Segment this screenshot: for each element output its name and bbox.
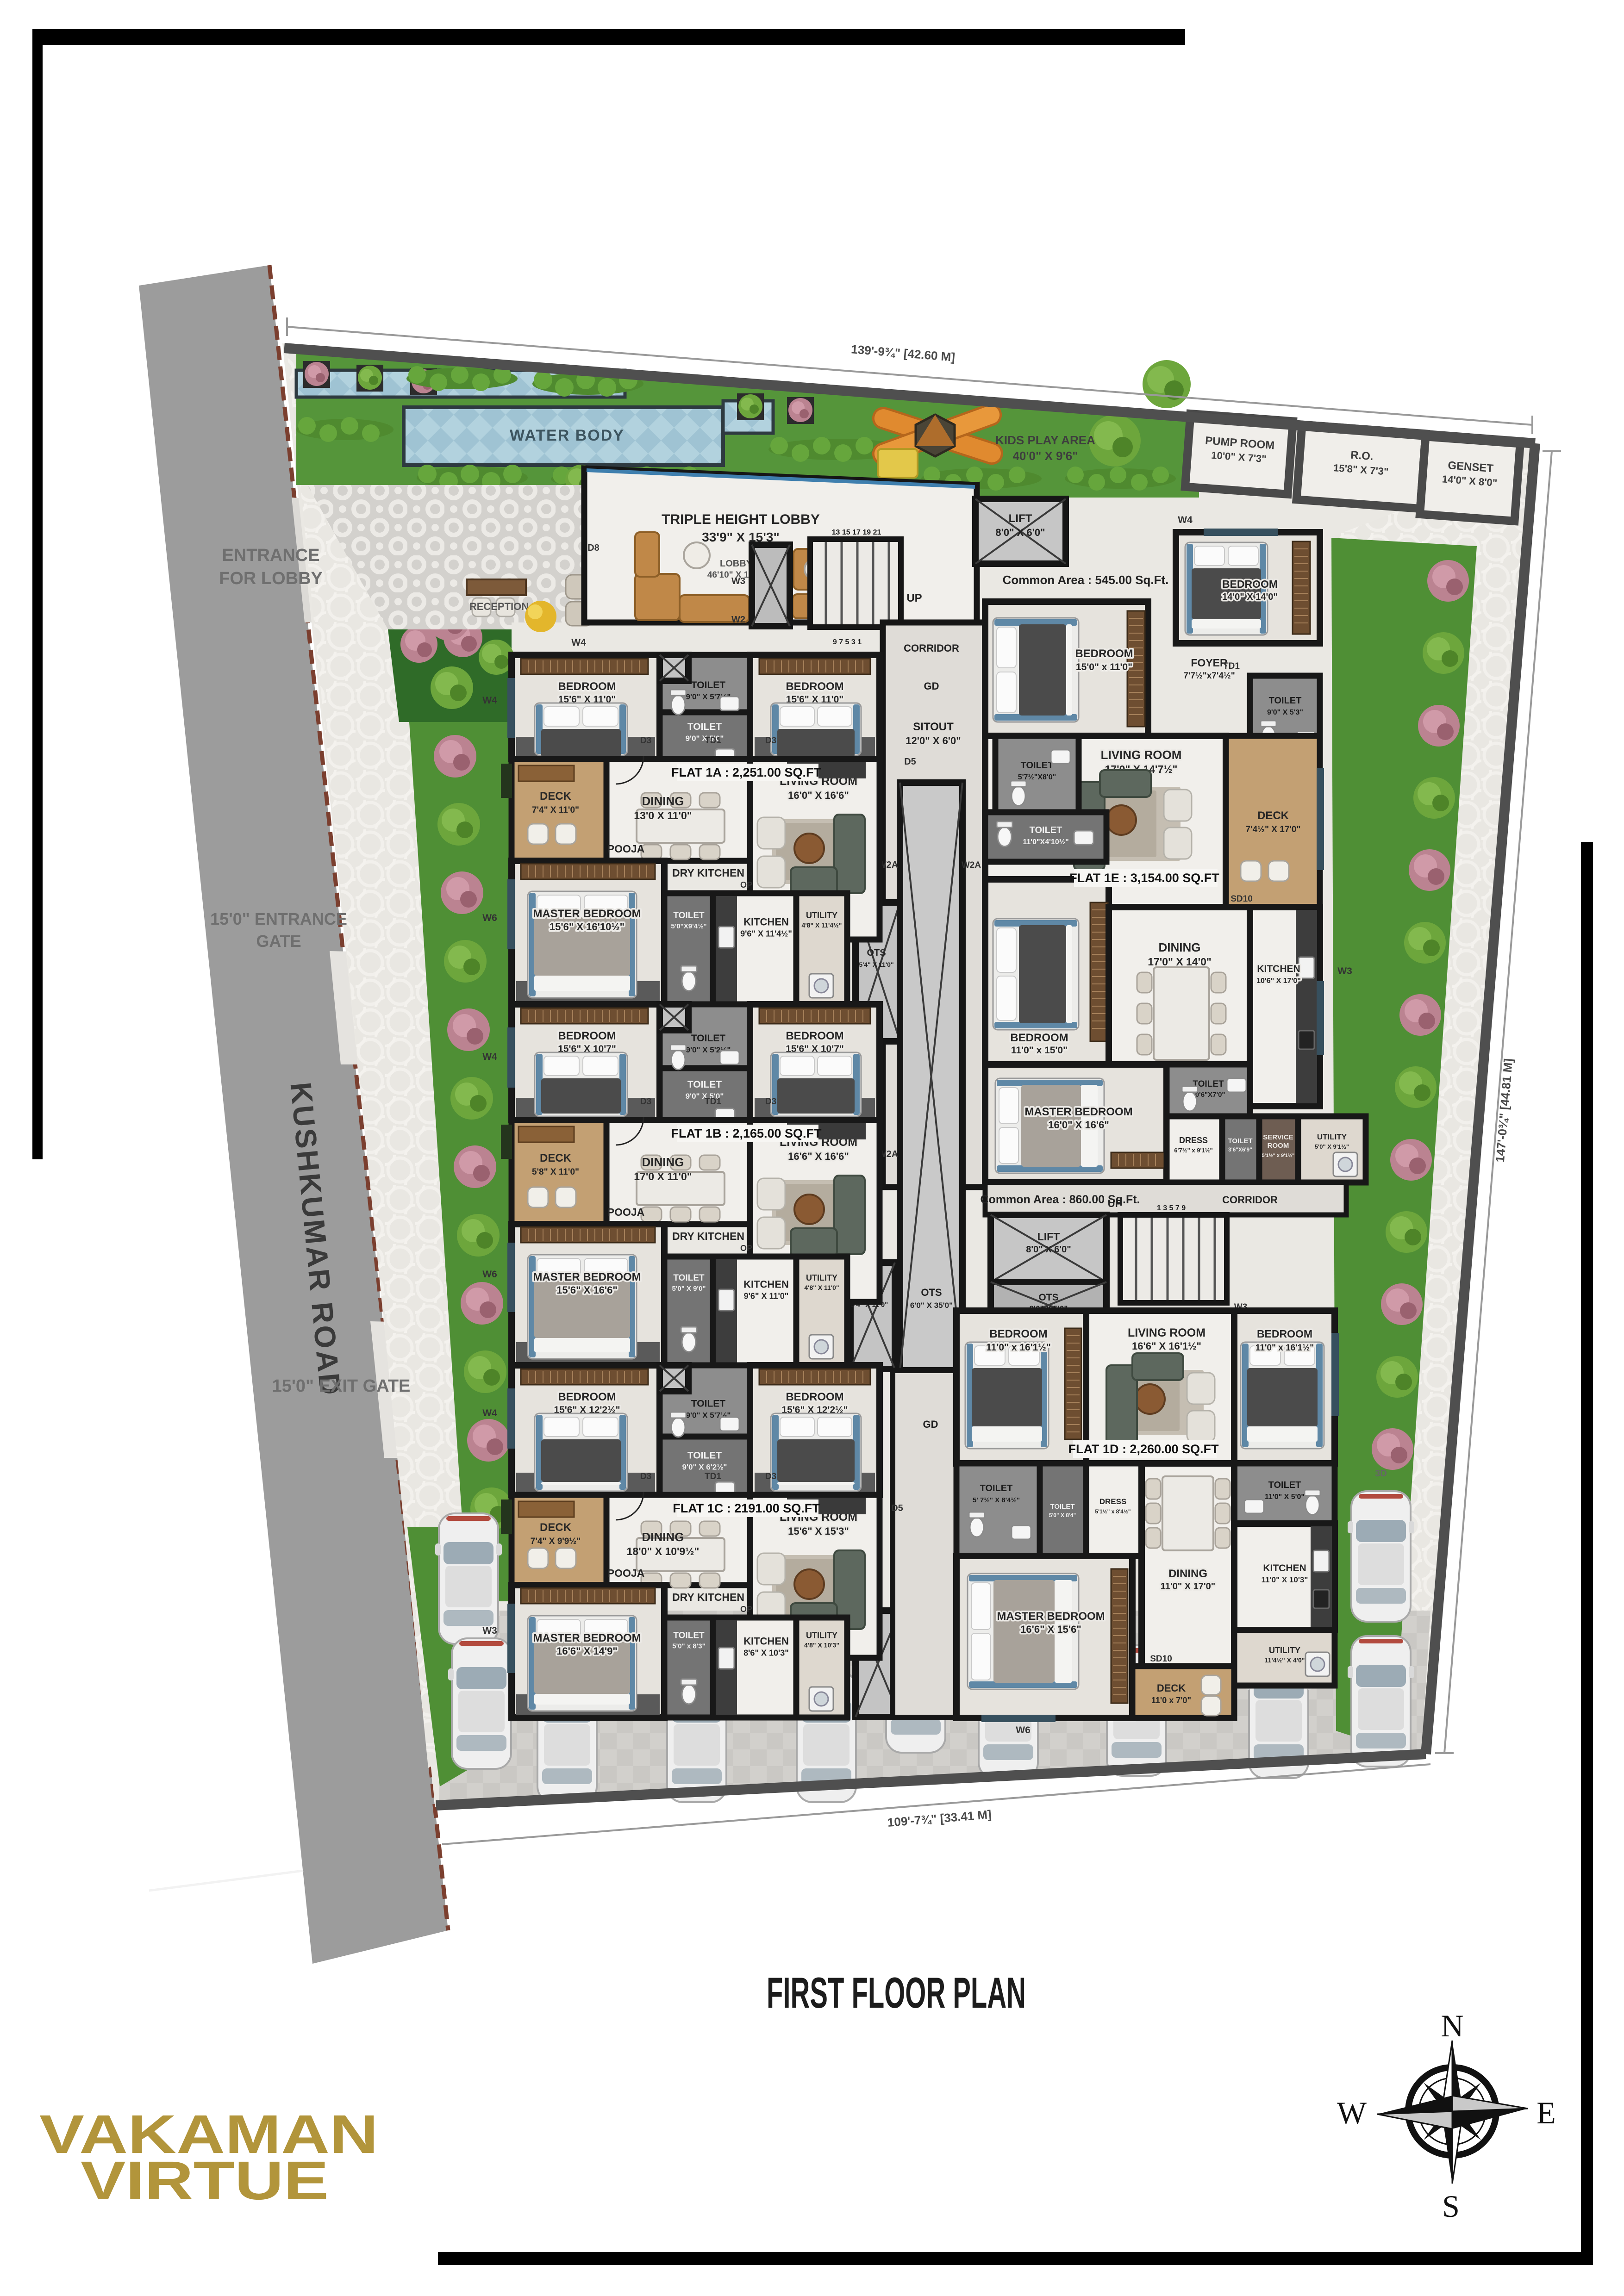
svg-text:DINING: DINING	[1168, 1568, 1207, 1580]
svg-text:5'4" X 11'0": 5'4" X 11'0"	[859, 961, 893, 968]
svg-text:18'0" X 10'9½": 18'0" X 10'9½"	[627, 1545, 700, 1557]
svg-text:16'0" X 16'6": 16'0" X 16'6"	[788, 790, 849, 801]
svg-text:KITCHEN: KITCHEN	[743, 916, 789, 928]
svg-text:15'6" X 16'10½": 15'6" X 16'10½"	[550, 921, 625, 933]
svg-text:7'7½"x7'4½": 7'7½"x7'4½"	[1183, 671, 1235, 681]
svg-text:LIFT: LIFT	[1037, 1231, 1060, 1243]
svg-text:15'0" ENTRANCE: 15'0" ENTRANCE	[210, 909, 347, 928]
svg-text:UP: UP	[1108, 1198, 1122, 1209]
svg-text:16'0" X 16'6": 16'0" X 16'6"	[1048, 1119, 1109, 1131]
svg-text:GD: GD	[923, 1419, 938, 1430]
svg-text:N: N	[1441, 2008, 1463, 2043]
svg-text:KITCHEN: KITCHEN	[743, 1278, 789, 1290]
svg-text:BEDROOM: BEDROOM	[1075, 647, 1133, 660]
svg-text:TOILET: TOILET	[1021, 760, 1054, 771]
svg-text:BEDROOM: BEDROOM	[989, 1328, 1047, 1340]
svg-text:9'6" X 11'4½": 9'6" X 11'4½"	[740, 929, 792, 939]
svg-text:BEDROOM: BEDROOM	[786, 1030, 843, 1042]
svg-text:OP: OP	[740, 1605, 752, 1614]
svg-text:DECK: DECK	[540, 1152, 572, 1164]
svg-text:W4: W4	[482, 1052, 497, 1062]
svg-text:SD10: SD10	[1230, 894, 1253, 904]
svg-text:TOILET: TOILET	[687, 1450, 722, 1461]
svg-text:TOILET: TOILET	[687, 1079, 722, 1090]
svg-text:TOILET: TOILET	[980, 1483, 1013, 1493]
svg-text:FLAT 1C : 2191.00 SQ.FT: FLAT 1C : 2191.00 SQ.FT	[673, 1501, 820, 1515]
svg-text:GATE: GATE	[256, 932, 301, 951]
svg-text:RECEPTION: RECEPTION	[469, 601, 529, 612]
svg-text:14'0" X 14'0": 14'0" X 14'0"	[1222, 592, 1278, 602]
svg-text:5' 7½" X 8'4½": 5' 7½" X 8'4½"	[973, 1496, 1020, 1504]
svg-text:ENTRANCE: ENTRANCE	[222, 546, 319, 565]
svg-text:MASTER BEDROOM: MASTER BEDROOM	[997, 1610, 1105, 1623]
svg-text:11'0" X 17'0": 11'0" X 17'0"	[1161, 1581, 1216, 1592]
svg-text:FLAT 1E : 3,154.00 SQ.FT: FLAT 1E : 3,154.00 SQ.FT	[1069, 871, 1219, 885]
svg-text:UTILITY: UTILITY	[806, 911, 837, 920]
svg-text:S: S	[1442, 2189, 1460, 2224]
svg-text:W6: W6	[482, 913, 497, 923]
svg-text:POOJA: POOJA	[607, 1567, 645, 1579]
svg-text:9'0" X 5'3": 9'0" X 5'3"	[1267, 709, 1303, 716]
svg-text:D5: D5	[904, 757, 916, 767]
svg-text:12'0" X 6'0": 12'0" X 6'0"	[906, 735, 961, 747]
svg-text:W4: W4	[482, 695, 497, 706]
svg-text:BEDROOM: BEDROOM	[786, 1391, 843, 1403]
svg-text:TOILET: TOILET	[1030, 825, 1062, 835]
svg-text:UP: UP	[906, 592, 922, 604]
svg-text:TD1: TD1	[1223, 661, 1240, 671]
svg-text:17'0" X 14'0": 17'0" X 14'0"	[1148, 956, 1212, 968]
svg-text:FIRST FLOOR PLAN: FIRST FLOOR PLAN	[767, 1968, 1026, 2017]
svg-text:DECK: DECK	[1257, 809, 1289, 822]
svg-text:15'6" X 15'3": 15'6" X 15'3"	[788, 1525, 849, 1537]
svg-text:BEDROOM: BEDROOM	[786, 680, 843, 693]
svg-text:CORRIDOR: CORRIDOR	[904, 642, 959, 654]
svg-text:5'8" X 11'0": 5'8" X 11'0"	[532, 1167, 579, 1177]
svg-text:5'0" X 9'1½": 5'0" X 9'1½"	[1315, 1143, 1349, 1150]
svg-text:5'0" X 8'4": 5'0" X 8'4"	[1049, 1512, 1076, 1518]
svg-text:4'8" X 11'4½": 4'8" X 11'4½"	[802, 921, 842, 929]
svg-text:BEDROOM: BEDROOM	[558, 680, 616, 693]
svg-text:5'1½" x 9'1½": 5'1½" x 9'1½"	[1262, 1153, 1295, 1158]
svg-text:11'4½" X 4'0": 11'4½" X 4'0"	[1265, 1656, 1305, 1664]
svg-text:6'7½" x 9'1½": 6'7½" x 9'1½"	[1174, 1147, 1213, 1154]
svg-text:OP: OP	[740, 1244, 752, 1253]
svg-text:3D: 3D	[1375, 1468, 1387, 1479]
svg-text:13 15 17 19 21: 13 15 17 19 21	[832, 529, 881, 536]
svg-text:MASTER BEDROOM: MASTER BEDROOM	[1024, 1106, 1132, 1118]
svg-text:DINING: DINING	[642, 1155, 684, 1169]
svg-text:LIFT: LIFT	[1009, 512, 1032, 525]
svg-text:TOILET: TOILET	[1269, 696, 1302, 706]
svg-text:D3: D3	[765, 1097, 776, 1107]
svg-text:15'6" X 16'6": 15'6" X 16'6"	[556, 1284, 618, 1296]
svg-text:TOILET: TOILET	[1228, 1137, 1252, 1145]
svg-text:FLAT 1A : 2,251.00 SQ.FT: FLAT 1A : 2,251.00 SQ.FT	[671, 765, 822, 779]
svg-text:KITCHEN: KITCHEN	[743, 1636, 789, 1647]
svg-text:D5: D5	[891, 1503, 903, 1513]
svg-text:LOBBY: LOBBY	[720, 559, 753, 569]
svg-text:TOILET: TOILET	[673, 911, 705, 921]
svg-text:16'6" X 14'9": 16'6" X 14'9"	[556, 1645, 618, 1657]
svg-text:TOILET: TOILET	[1050, 1503, 1074, 1511]
svg-text:TOILET: TOILET	[691, 680, 725, 691]
svg-text:DRY KITCHEN: DRY KITCHEN	[672, 1591, 744, 1603]
svg-text:TD1: TD1	[705, 1472, 721, 1481]
svg-text:8'6" X 10'3": 8'6" X 10'3"	[743, 1649, 789, 1658]
svg-text:KIDS PLAY AREA: KIDS PLAY AREA	[995, 433, 1095, 447]
svg-text:Common Area : 545.00 Sq.Ft.: Common Area : 545.00 Sq.Ft.	[1003, 573, 1169, 587]
svg-text:TRIPLE HEIGHT LOBBY: TRIPLE HEIGHT LOBBY	[662, 512, 820, 527]
svg-text:11'0" x 15'0": 11'0" x 15'0"	[1011, 1045, 1068, 1056]
svg-text:TOILET: TOILET	[673, 1630, 705, 1640]
svg-text:W: W	[1337, 2095, 1367, 2130]
svg-text:DECK: DECK	[540, 1521, 572, 1534]
svg-text:UTILITY: UTILITY	[1269, 1646, 1300, 1655]
svg-text:SD10: SD10	[1150, 1654, 1172, 1664]
svg-text:VIRTUE: VIRTUE	[81, 2150, 329, 2211]
svg-text:D8: D8	[587, 543, 600, 553]
svg-text:10'6" X 17'0": 10'6" X 17'0"	[1256, 977, 1301, 985]
svg-text:OTS: OTS	[921, 1287, 942, 1298]
svg-text:ROOM: ROOM	[1268, 1142, 1289, 1150]
svg-text:BEDROOM: BEDROOM	[1010, 1032, 1068, 1044]
svg-text:POOJA: POOJA	[607, 1206, 645, 1218]
svg-text:BEDROOM: BEDROOM	[558, 1030, 616, 1042]
svg-text:SERVICE: SERVICE	[1263, 1133, 1293, 1141]
svg-text:DINING: DINING	[642, 794, 684, 808]
svg-text:13'0 X 11'0": 13'0 X 11'0"	[634, 809, 692, 821]
svg-text:UTILITY: UTILITY	[806, 1273, 837, 1282]
svg-text:7'4" X 9'9½": 7'4" X 9'9½"	[531, 1537, 581, 1546]
svg-text:MASTER BEDROOM: MASTER BEDROOM	[533, 908, 641, 920]
svg-text:W2: W2	[731, 615, 745, 625]
svg-text:SITOUT: SITOUT	[913, 721, 954, 733]
svg-text:DINING: DINING	[642, 1530, 684, 1544]
svg-text:MASTER BEDROOM: MASTER BEDROOM	[533, 1271, 641, 1283]
svg-text:GD: GD	[924, 680, 939, 692]
svg-text:3'6"X6'9": 3'6"X6'9"	[1228, 1146, 1252, 1153]
svg-text:15'0" x 11'0": 15'0" x 11'0"	[1076, 662, 1132, 672]
svg-text:11'0" X 10'3": 11'0" X 10'3"	[1262, 1575, 1308, 1584]
svg-text:E: E	[1537, 2095, 1556, 2130]
svg-text:BEDROOM: BEDROOM	[1222, 578, 1278, 590]
svg-text:OTS: OTS	[1038, 1292, 1058, 1303]
svg-text:TD1: TD1	[705, 736, 721, 746]
svg-text:16'6" X 15'6": 16'6" X 15'6"	[1020, 1624, 1081, 1635]
svg-text:R.O.: R.O.	[1350, 449, 1374, 463]
svg-text:W4: W4	[482, 1408, 497, 1419]
svg-text:TOILET: TOILET	[687, 722, 722, 732]
svg-text:DRY KITCHEN: DRY KITCHEN	[672, 867, 744, 879]
svg-text:W6: W6	[482, 1269, 497, 1280]
svg-text:W4: W4	[571, 637, 586, 648]
svg-text:1 3 5 7 9: 1 3 5 7 9	[1157, 1204, 1186, 1212]
svg-text:D3: D3	[765, 736, 776, 746]
svg-text:OP: OP	[740, 880, 752, 890]
svg-text:D3: D3	[640, 1097, 651, 1107]
svg-text:W2A: W2A	[962, 860, 981, 870]
svg-text:W3: W3	[731, 576, 745, 586]
svg-text:FOYER: FOYER	[1191, 657, 1228, 669]
svg-text:16'6" X 16'1½": 16'6" X 16'1½"	[1132, 1340, 1201, 1352]
svg-text:D3: D3	[765, 1472, 776, 1481]
svg-text:DINING: DINING	[1159, 940, 1201, 954]
svg-text:TOILET: TOILET	[691, 1399, 725, 1409]
svg-text:8'0" X 6'0": 8'0" X 6'0"	[995, 527, 1045, 538]
svg-text:CORRIDOR: CORRIDOR	[1222, 1194, 1278, 1206]
svg-text:OTS: OTS	[867, 948, 886, 958]
svg-text:9'0" X 6'2½": 9'0" X 6'2½"	[682, 1463, 727, 1472]
svg-text:DECK: DECK	[1157, 1682, 1186, 1694]
svg-text:BEDROOM: BEDROOM	[1257, 1328, 1312, 1340]
svg-text:LIVING ROOM: LIVING ROOM	[1101, 748, 1182, 762]
svg-text:W4: W4	[1178, 515, 1193, 525]
svg-text:4'8" X 10'3": 4'8" X 10'3"	[804, 1641, 839, 1649]
svg-text:7'4" X 11'0": 7'4" X 11'0"	[532, 805, 579, 815]
svg-text:TOILET: TOILET	[673, 1273, 705, 1283]
svg-text:DECK: DECK	[540, 790, 572, 803]
svg-text:8'0" X 6'0": 8'0" X 6'0"	[1026, 1244, 1071, 1255]
svg-text:FLAT 1B : 2,165.00 SQ.FT: FLAT 1B : 2,165.00 SQ.FT	[671, 1126, 822, 1140]
svg-text:5'0" x 8'3": 5'0" x 8'3"	[672, 1642, 705, 1650]
svg-text:WATER BODY: WATER BODY	[510, 427, 625, 444]
svg-text:W3: W3	[482, 1625, 497, 1636]
svg-text:17'0 X 11'0": 17'0 X 11'0"	[634, 1170, 692, 1182]
svg-text:KITCHEN: KITCHEN	[1257, 964, 1300, 974]
svg-text:16'6" X 16'6": 16'6" X 16'6"	[788, 1151, 849, 1162]
svg-text:KITCHEN: KITCHEN	[1263, 1563, 1306, 1574]
svg-text:W3: W3	[1337, 966, 1352, 977]
svg-text:5'1½" x 8'4½": 5'1½" x 8'4½"	[1095, 1508, 1131, 1515]
svg-text:TD1: TD1	[705, 1097, 721, 1107]
svg-text:TOILET: TOILET	[1268, 1480, 1301, 1490]
svg-text:POOJA: POOJA	[607, 843, 645, 855]
svg-text:4'8" X 11'0": 4'8" X 11'0"	[804, 1284, 839, 1291]
svg-text:9'6" X 11'0": 9'6" X 11'0"	[744, 1291, 789, 1300]
svg-text:DRY KITCHEN: DRY KITCHEN	[672, 1230, 744, 1242]
svg-text:BEDROOM: BEDROOM	[558, 1391, 616, 1403]
svg-text:W6: W6	[1016, 1725, 1031, 1736]
svg-text:UTILITY: UTILITY	[806, 1630, 837, 1640]
svg-text:D3: D3	[640, 1472, 651, 1481]
svg-text:15'0" EXIT GATE: 15'0" EXIT GATE	[272, 1376, 411, 1396]
svg-text:D3: D3	[640, 736, 651, 746]
svg-text:FLAT 1D : 2,260.00 SQ.FT: FLAT 1D : 2,260.00 SQ.FT	[1068, 1442, 1219, 1456]
svg-text:LIVING ROOM: LIVING ROOM	[1128, 1326, 1206, 1339]
svg-text:5'7½"X8'0": 5'7½"X8'0"	[1018, 773, 1056, 781]
svg-text:11'0"X4'10½": 11'0"X4'10½"	[1023, 838, 1068, 846]
svg-text:5'0"X9'4½": 5'0"X9'4½"	[671, 922, 706, 930]
svg-text:11'0" x 16'1½": 11'0" x 16'1½"	[986, 1342, 1051, 1353]
svg-text:DRESS: DRESS	[1099, 1497, 1127, 1506]
svg-text:6'0" X 35'0": 6'0" X 35'0"	[910, 1301, 953, 1310]
svg-text:MASTER BEDROOM: MASTER BEDROOM	[533, 1632, 641, 1644]
svg-text:7'4½" X 17'0": 7'4½" X 17'0"	[1246, 825, 1301, 834]
svg-text:TOILET: TOILET	[691, 1033, 725, 1044]
svg-text:DRESS: DRESS	[1179, 1136, 1208, 1145]
svg-text:11'0 x 7'0": 11'0 x 7'0"	[1151, 1696, 1191, 1705]
svg-text:UTILITY: UTILITY	[1317, 1132, 1347, 1141]
svg-text:FOR LOBBY: FOR LOBBY	[219, 569, 323, 588]
svg-text:40'0" X 9'6": 40'0" X 9'6"	[1012, 449, 1078, 463]
svg-text:9 7 5 3 1: 9 7 5 3 1	[833, 638, 862, 646]
svg-text:5'0" X 9'0": 5'0" X 9'0"	[672, 1285, 706, 1293]
svg-text:11'0" X 5'0": 11'0" X 5'0"	[1265, 1493, 1305, 1501]
svg-text:11'0" x 16'1½": 11'0" x 16'1½"	[1255, 1343, 1314, 1353]
